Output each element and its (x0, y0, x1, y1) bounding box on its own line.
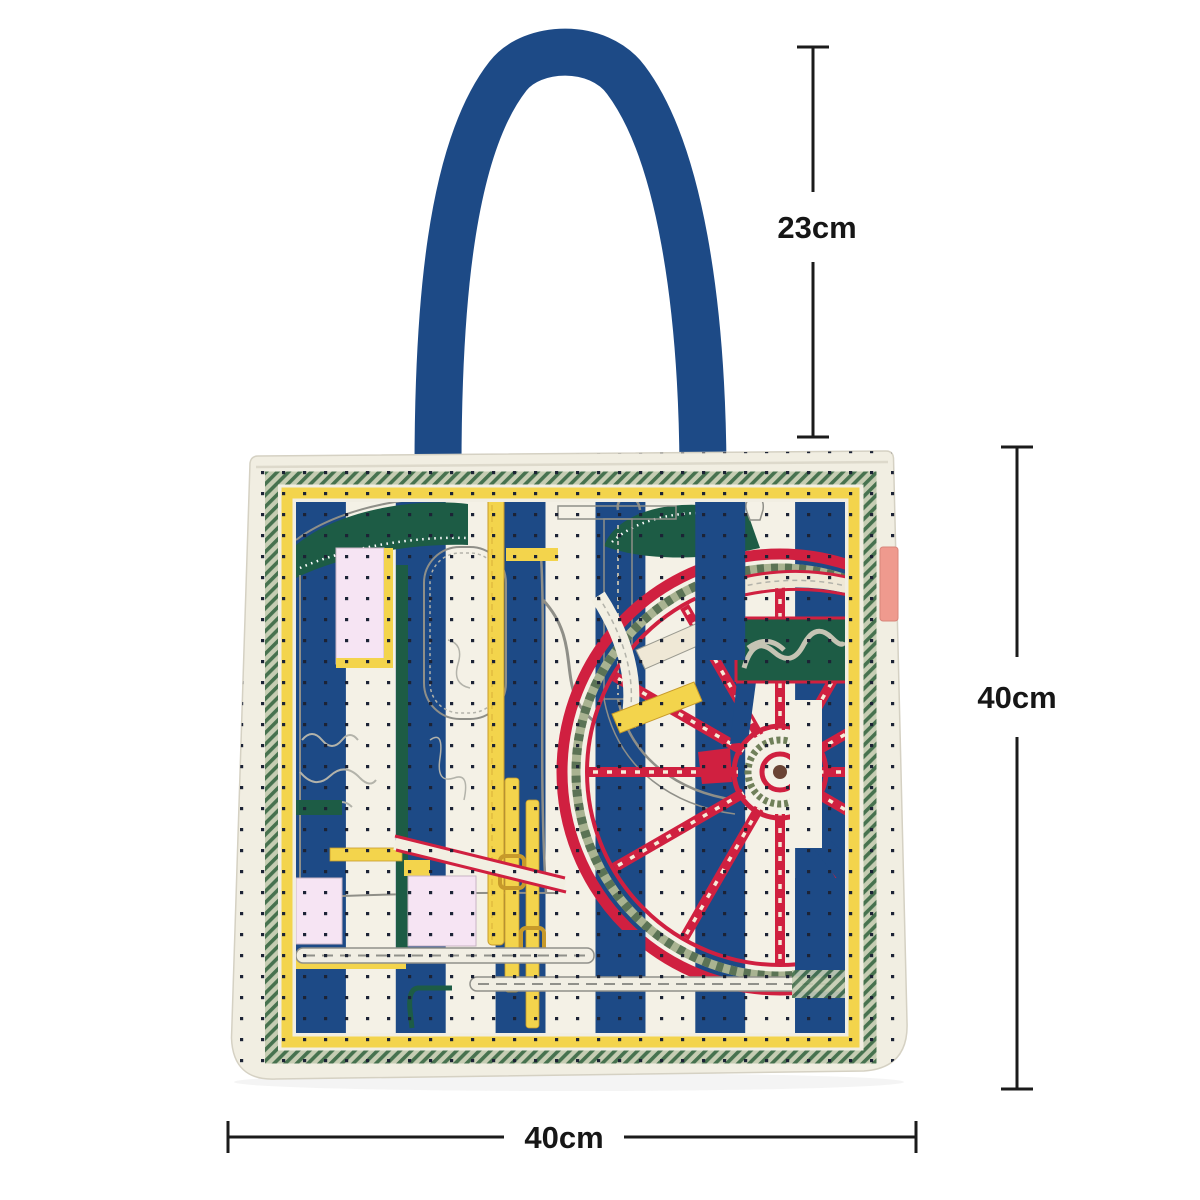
bag-height-label: 40cm (977, 680, 1056, 715)
bag-handle (438, 52, 703, 468)
dimension-handle-drop: 23cm (777, 47, 856, 437)
dimension-bag-width: 40cm (228, 1120, 916, 1155)
bag-width-label: 40cm (524, 1120, 603, 1155)
product-dimension-diagram: 23cm 40cm 40cm (0, 0, 1200, 1200)
tote-bag-figure: 23cm 40cm 40cm (0, 0, 1200, 1200)
dimension-bag-height: 40cm (977, 447, 1056, 1089)
brand-tag (880, 547, 898, 621)
polka-dot-overlay (232, 451, 908, 1079)
handle-drop-label: 23cm (777, 210, 856, 245)
